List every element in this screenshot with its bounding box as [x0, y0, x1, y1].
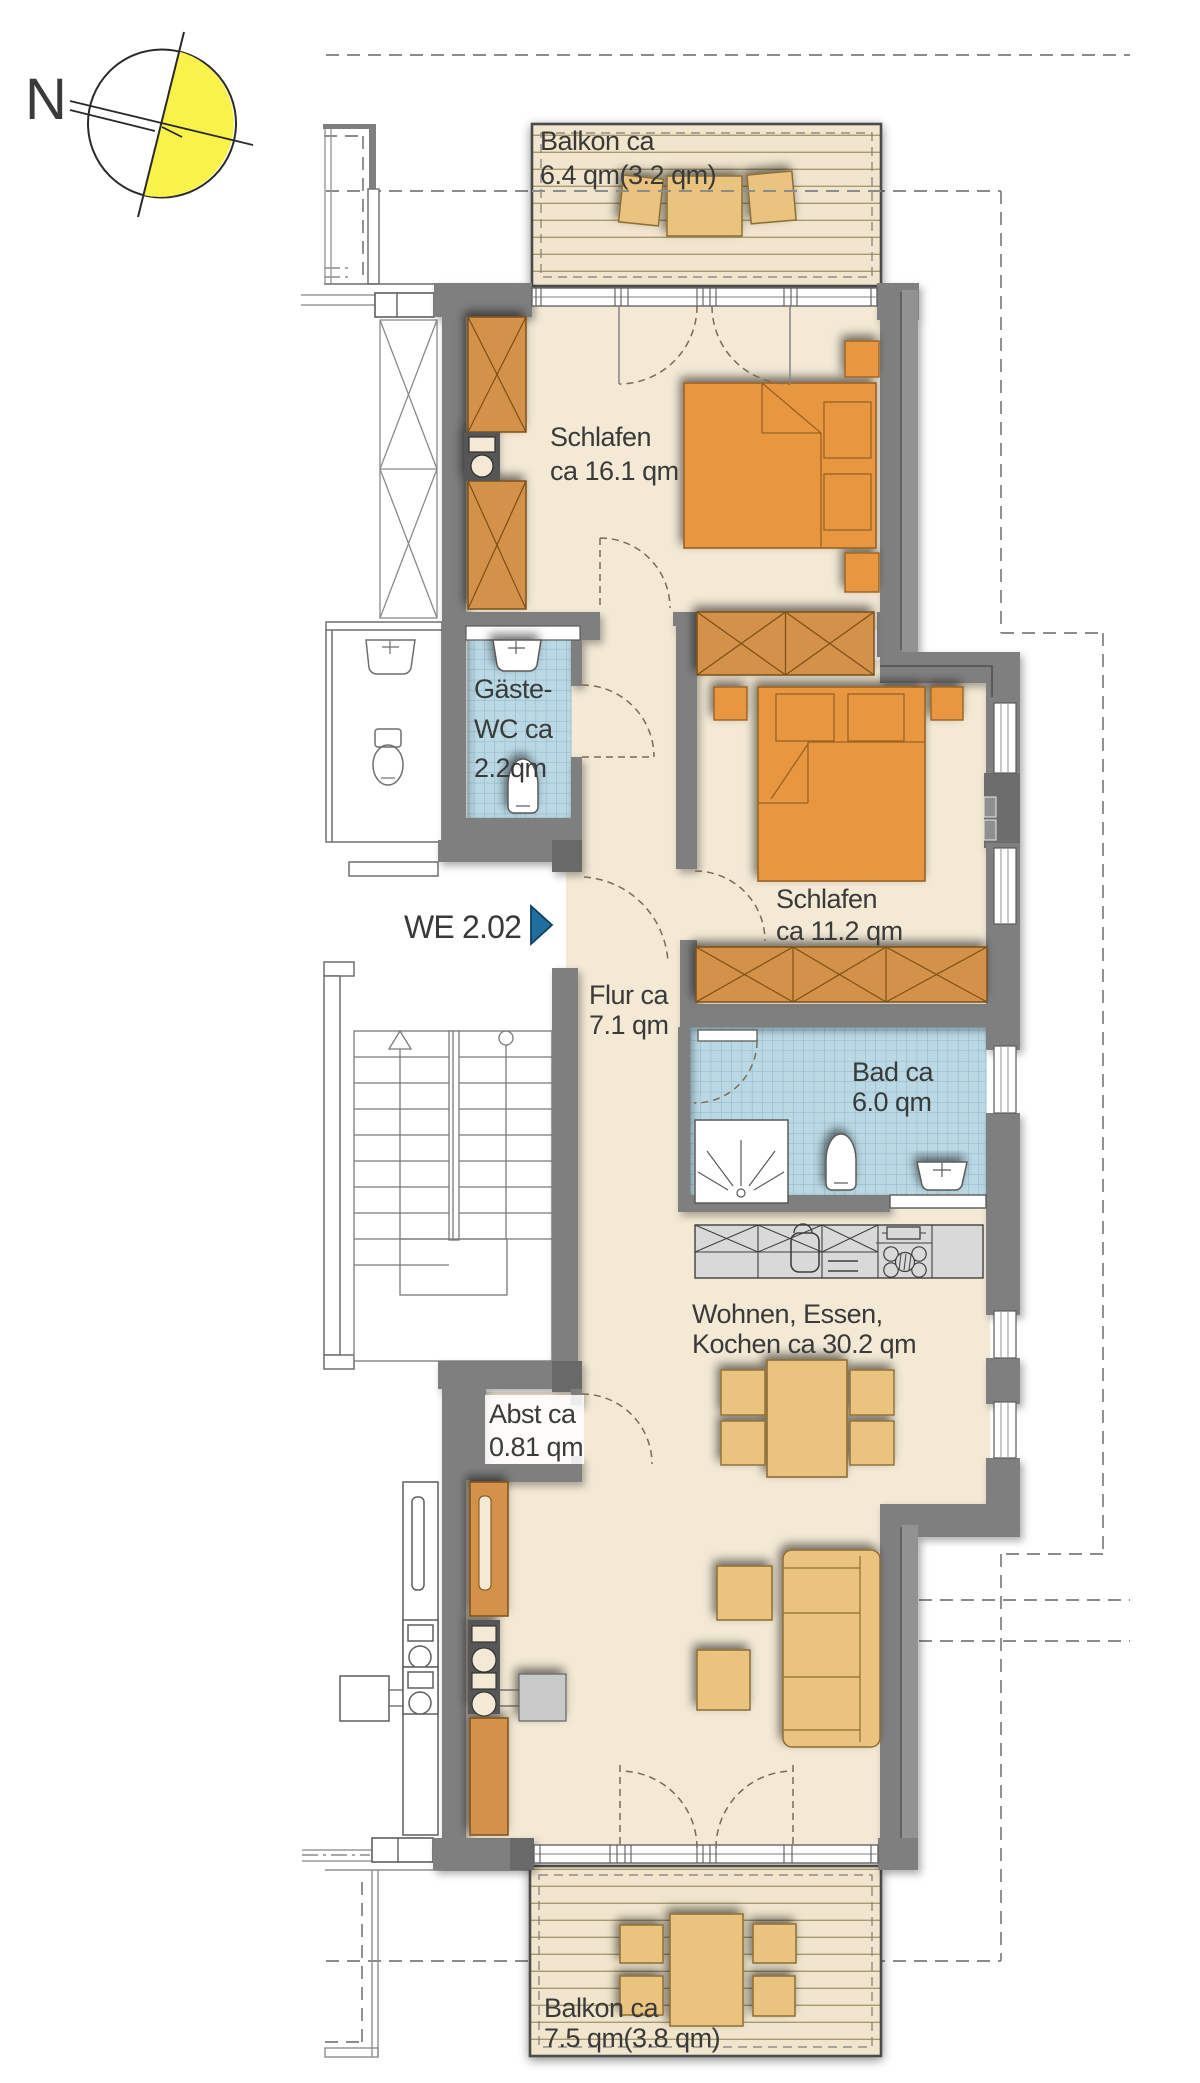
svg-text:7.1 qm: 7.1 qm [589, 1010, 669, 1040]
svg-text:ca 16.1 qm: ca 16.1 qm [550, 456, 679, 486]
svg-text:Flur ca: Flur ca [589, 980, 670, 1010]
svg-text:Gäste-: Gäste- [474, 674, 552, 704]
svg-text:WC ca: WC ca [474, 714, 554, 744]
svg-text:2.2qm: 2.2qm [474, 753, 547, 783]
svg-text:N: N [25, 67, 67, 132]
svg-text:WE 2.02: WE 2.02 [404, 909, 521, 945]
svg-text:Balkon ca: Balkon ca [544, 1993, 660, 2023]
svg-text:0.81 qm: 0.81 qm [489, 1432, 583, 1462]
svg-text:Balkon ca: Balkon ca [540, 126, 656, 156]
svg-text:6.0 qm: 6.0 qm [852, 1087, 932, 1117]
svg-text:Schlafen: Schlafen [776, 884, 877, 914]
svg-text:Bad ca: Bad ca [852, 1057, 935, 1087]
svg-text:Kochen ca 30.2 qm: Kochen ca 30.2 qm [692, 1329, 916, 1359]
svg-text:Wohnen, Essen,: Wohnen, Essen, [692, 1299, 883, 1329]
svg-text:Abst ca: Abst ca [489, 1399, 577, 1429]
svg-text:Schlafen: Schlafen [550, 422, 651, 452]
svg-text:ca 11.2 qm: ca 11.2 qm [776, 916, 903, 946]
svg-text:7.5 qm(3.8 qm): 7.5 qm(3.8 qm) [544, 2023, 720, 2053]
svg-text:6.4 qm(3.2 qm): 6.4 qm(3.2 qm) [540, 160, 716, 190]
